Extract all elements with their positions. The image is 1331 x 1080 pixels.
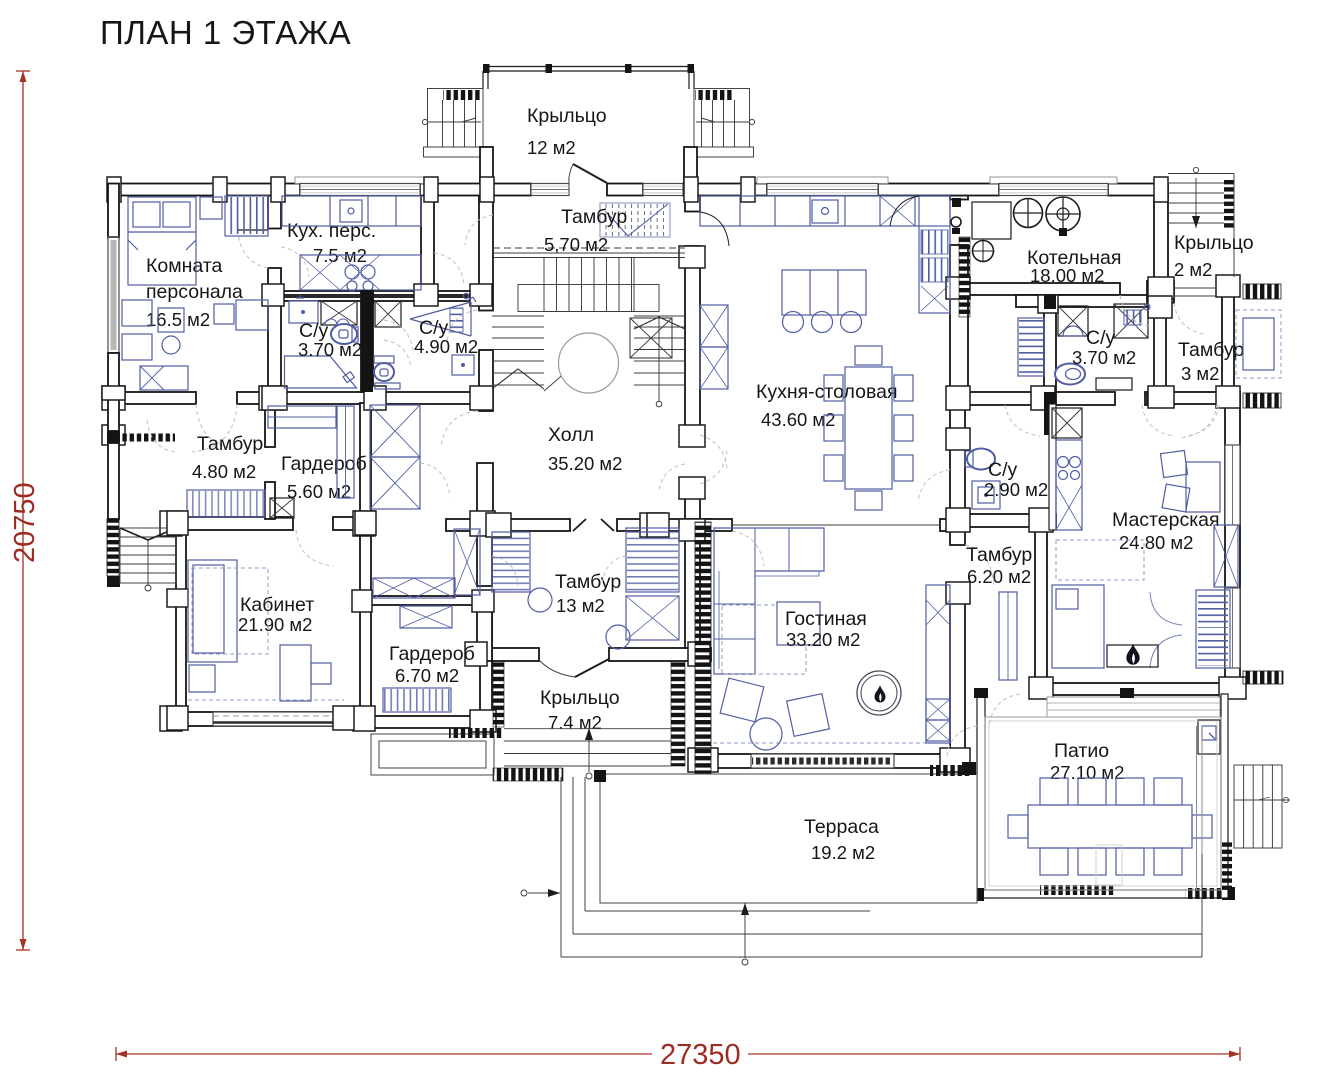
svg-text:21.90 м2: 21.90 м2 — [238, 614, 312, 635]
svg-text:2.90 м2: 2.90 м2 — [984, 479, 1048, 500]
svg-text:Гостиная: Гостиная — [785, 608, 867, 630]
svg-text:Тамбур: Тамбур — [197, 433, 263, 455]
svg-text:персонала: персонала — [146, 281, 243, 303]
svg-text:Комната: Комната — [146, 255, 223, 277]
svg-text:3 м2: 3 м2 — [1181, 363, 1219, 384]
svg-text:20750: 20750 — [9, 482, 41, 563]
svg-text:4.80 м2: 4.80 м2 — [192, 461, 256, 482]
svg-text:16.5 м2: 16.5 м2 — [146, 309, 210, 330]
svg-text:Кухня-столовая: Кухня-столовая — [756, 381, 898, 403]
svg-text:24.80 м2: 24.80 м2 — [1119, 532, 1193, 553]
svg-text:Тамбур: Тамбур — [555, 571, 621, 593]
svg-text:Тамбур: Тамбур — [1178, 339, 1244, 361]
svg-text:7.4 м2: 7.4 м2 — [548, 712, 602, 733]
svg-text:19.2 м2: 19.2 м2 — [811, 842, 875, 863]
svg-text:Крыльцо: Крыльцо — [1174, 232, 1254, 254]
svg-text:С/у: С/у — [988, 459, 1018, 481]
svg-text:27350: 27350 — [660, 1039, 741, 1071]
svg-text:ПЛАН 1 ЭТАЖА: ПЛАН 1 ЭТАЖА — [100, 14, 351, 51]
svg-text:Гардероб: Гардероб — [389, 643, 475, 665]
svg-text:Крыльцо: Крыльцо — [527, 105, 607, 127]
svg-text:12 м2: 12 м2 — [527, 137, 576, 158]
svg-text:6.70 м2: 6.70 м2 — [395, 665, 459, 686]
svg-text:3.70 м2: 3.70 м2 — [298, 339, 362, 360]
svg-text:6.20 м2: 6.20 м2 — [967, 566, 1031, 587]
svg-text:Холл: Холл — [548, 424, 594, 446]
svg-text:18.00 м2: 18.00 м2 — [1030, 265, 1104, 286]
svg-text:4.90 м2: 4.90 м2 — [414, 336, 478, 357]
svg-text:С/у: С/у — [1086, 327, 1116, 349]
svg-text:Тамбур: Тамбур — [966, 544, 1032, 566]
svg-text:Кабинет: Кабинет — [240, 594, 314, 616]
svg-text:27.10 м2: 27.10 м2 — [1050, 762, 1124, 783]
svg-text:Кух. перс.: Кух. перс. — [287, 220, 376, 242]
svg-text:5,70 м2: 5,70 м2 — [544, 234, 608, 255]
svg-text:Тамбур: Тамбур — [561, 206, 627, 228]
svg-text:5.60 м2: 5.60 м2 — [287, 481, 351, 502]
svg-text:13 м2: 13 м2 — [556, 595, 605, 616]
svg-text:33.20 м2: 33.20 м2 — [786, 629, 860, 650]
svg-text:35.20 м2: 35.20 м2 — [548, 453, 622, 474]
svg-text:2 м2: 2 м2 — [1174, 259, 1212, 280]
svg-text:Крыльцо: Крыльцо — [540, 687, 620, 709]
svg-text:Терраса: Терраса — [804, 816, 879, 838]
svg-text:3.70 м2: 3.70 м2 — [1072, 347, 1136, 368]
svg-text:Патио: Патио — [1054, 740, 1109, 762]
